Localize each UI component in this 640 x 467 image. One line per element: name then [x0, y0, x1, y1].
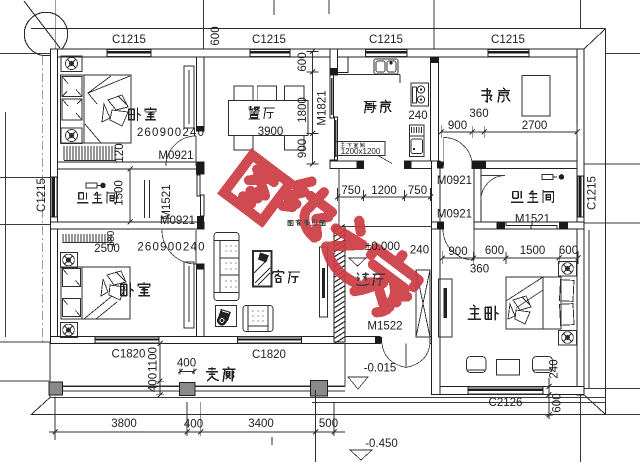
- svg-text:3800: 3800: [111, 418, 137, 430]
- svg-text:900: 900: [448, 246, 467, 258]
- svg-text:-0.450: -0.450: [365, 438, 398, 450]
- svg-text:C1215: C1215: [112, 34, 146, 46]
- svg-text:C1215: C1215: [369, 34, 403, 46]
- svg-text:900: 900: [448, 120, 467, 132]
- svg-text:1100: 1100: [148, 347, 160, 372]
- svg-text:C2126: C2126: [489, 397, 523, 409]
- svg-text:C1820: C1820: [112, 349, 146, 361]
- svg-text:360: 360: [469, 108, 488, 120]
- svg-text:260900240: 260900240: [137, 242, 205, 254]
- svg-text:M0921: M0921: [437, 209, 472, 221]
- svg-text:600: 600: [559, 245, 578, 257]
- svg-text:M1821: M1821: [317, 90, 329, 125]
- svg-text:600: 600: [552, 393, 564, 412]
- svg-text:750: 750: [408, 185, 427, 197]
- svg-text:2700: 2700: [522, 120, 548, 132]
- svg-text:±0.000: ±0.000: [365, 241, 400, 253]
- svg-text:260900240: 260900240: [137, 127, 205, 139]
- svg-text:M1522: M1522: [367, 321, 402, 333]
- svg-text:600: 600: [210, 26, 222, 45]
- svg-text:C1215: C1215: [252, 34, 286, 46]
- svg-text:3900: 3900: [258, 126, 284, 138]
- svg-text:1500: 1500: [520, 245, 546, 257]
- svg-text:360: 360: [470, 264, 489, 276]
- svg-text:240: 240: [549, 359, 561, 378]
- svg-text:240: 240: [408, 110, 427, 122]
- svg-text:1800: 1800: [297, 97, 309, 123]
- svg-text:500: 500: [319, 418, 338, 430]
- svg-text:400: 400: [148, 373, 160, 392]
- svg-text:C1215: C1215: [587, 176, 599, 210]
- svg-text:400: 400: [177, 358, 196, 370]
- svg-text:M0921: M0921: [437, 175, 472, 187]
- svg-text:120: 120: [114, 143, 126, 162]
- svg-text:3400: 3400: [248, 418, 274, 430]
- svg-text:900: 900: [297, 139, 309, 158]
- svg-text:240: 240: [410, 245, 429, 257]
- svg-text:750: 750: [341, 185, 360, 197]
- svg-text:1200: 1200: [371, 185, 397, 197]
- svg-text:1200x1200: 1200x1200: [341, 147, 381, 156]
- svg-text:600: 600: [485, 245, 504, 257]
- svg-text:400: 400: [184, 419, 203, 431]
- svg-text:1500: 1500: [114, 180, 126, 206]
- svg-text:-0.015: -0.015: [364, 363, 397, 375]
- svg-text:M0921: M0921: [158, 150, 193, 162]
- svg-text:C1215: C1215: [491, 34, 525, 46]
- svg-text:C1820: C1820: [252, 349, 286, 361]
- svg-text:M0921: M0921: [160, 215, 195, 227]
- svg-text:C1215: C1215: [36, 178, 48, 212]
- svg-text:600: 600: [297, 52, 309, 71]
- svg-text:M1521: M1521: [515, 214, 550, 226]
- svg-text:2500: 2500: [94, 243, 120, 255]
